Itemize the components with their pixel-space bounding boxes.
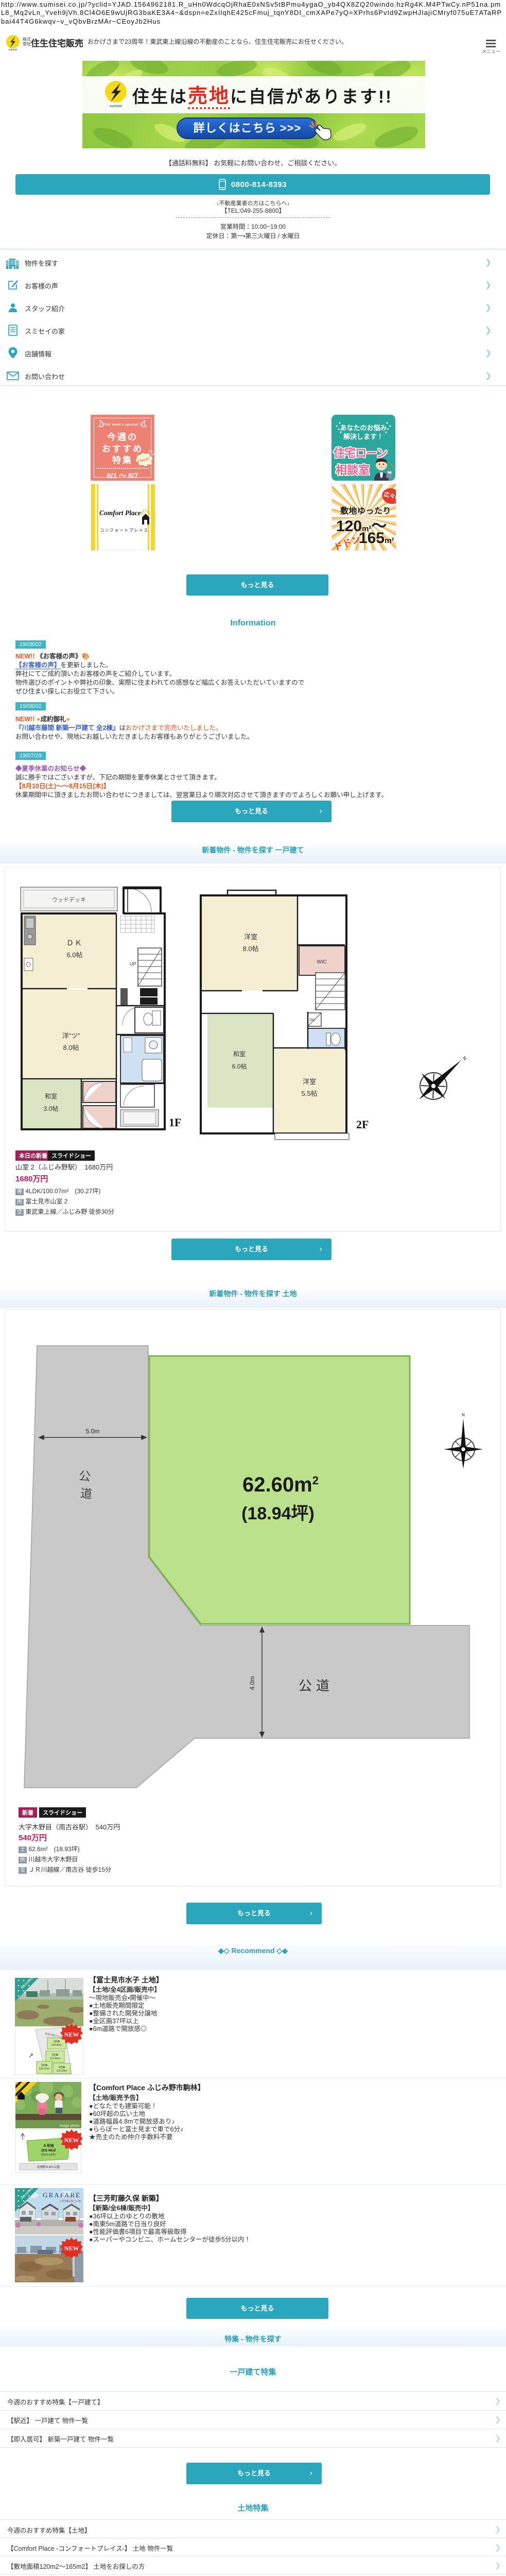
svg-text:62.60m2: 62.60m2 [242, 1473, 319, 1496]
svg-text:This week's special !!: This week's special !! [103, 423, 142, 427]
svg-text:8.0帖: 8.0帖 [63, 1044, 79, 1052]
svg-text:image photo: image photo [59, 2124, 79, 2128]
svg-text:GRAFARE: GRAFARE [43, 2191, 81, 2199]
svg-text:5.0m: 5.0m [86, 1428, 100, 1435]
svg-text:200.48㎡: 200.48㎡ [41, 2148, 56, 2153]
svg-text:2F: 2F [356, 1118, 369, 1131]
svg-text:(18.94坪): (18.94坪) [241, 1504, 315, 1523]
svg-text:UP: UP [130, 961, 136, 967]
svg-text:sumisei: sumisei [110, 105, 122, 108]
svg-text:ＤＫ: ＤＫ [66, 939, 83, 947]
svg-text:和室: 和室 [233, 1050, 246, 1058]
svg-text:1区画: 1区画 [54, 2040, 60, 2043]
svg-text:5.5帖: 5.5帖 [301, 1090, 317, 1097]
svg-text:洋室: 洋室 [303, 1078, 316, 1086]
svg-text:NEW: NEW [64, 2245, 79, 2252]
svg-text:WIC: WIC [317, 959, 326, 965]
svg-text:126.37m²: 126.37m² [39, 2067, 49, 2071]
svg-text:4区画: 4区画 [59, 2066, 65, 2069]
svg-text:6.0帖: 6.0帖 [232, 1062, 247, 1070]
svg-text:三芳町藤久保 全６棟: 三芳町藤久保 全６棟 [59, 2199, 81, 2203]
svg-text:洋“ツ”: 洋“ツ” [62, 1032, 80, 1040]
svg-text:3.0帖: 3.0帖 [44, 1105, 59, 1112]
svg-text:NEW: NEW [64, 2137, 79, 2144]
svg-text:公: 公 [78, 1469, 91, 1483]
svg-text:1F: 1F [169, 1116, 181, 1129]
svg-text:(約60.64坪): (約60.64坪) [41, 2153, 56, 2157]
svg-text:NEW: NEW [64, 2031, 79, 2038]
svg-text:道: 道 [80, 1486, 93, 1501]
svg-text:北側約4.8ｍ公道: 北側約4.8ｍ公道 [37, 2165, 60, 2169]
svg-text:ウッドデッキ: ウッドデッキ [52, 896, 86, 903]
svg-text:sumisei: sumisei [9, 48, 18, 52]
svg-text:123.46m²: 123.46m² [49, 2057, 60, 2060]
svg-text:N: N [462, 1055, 468, 1061]
svg-text:8.0帖: 8.0帖 [242, 945, 258, 953]
svg-text:3区画: 3区画 [41, 2064, 48, 2067]
svg-text:N: N [462, 1413, 465, 1417]
svg-text:6.0帖: 6.0帖 [66, 951, 82, 959]
svg-text:131.00m²: 131.00m² [56, 2070, 67, 2073]
svg-text:和室: 和室 [45, 1093, 57, 1100]
svg-text:2区画: 2区画 [52, 2054, 59, 2057]
svg-text:Ａ号地: Ａ号地 [43, 2143, 54, 2148]
svg-text:4.0m: 4.0m [249, 1676, 256, 1690]
svg-text:公道: 公道 [299, 1678, 334, 1693]
svg-text:洋室: 洋室 [244, 933, 257, 941]
